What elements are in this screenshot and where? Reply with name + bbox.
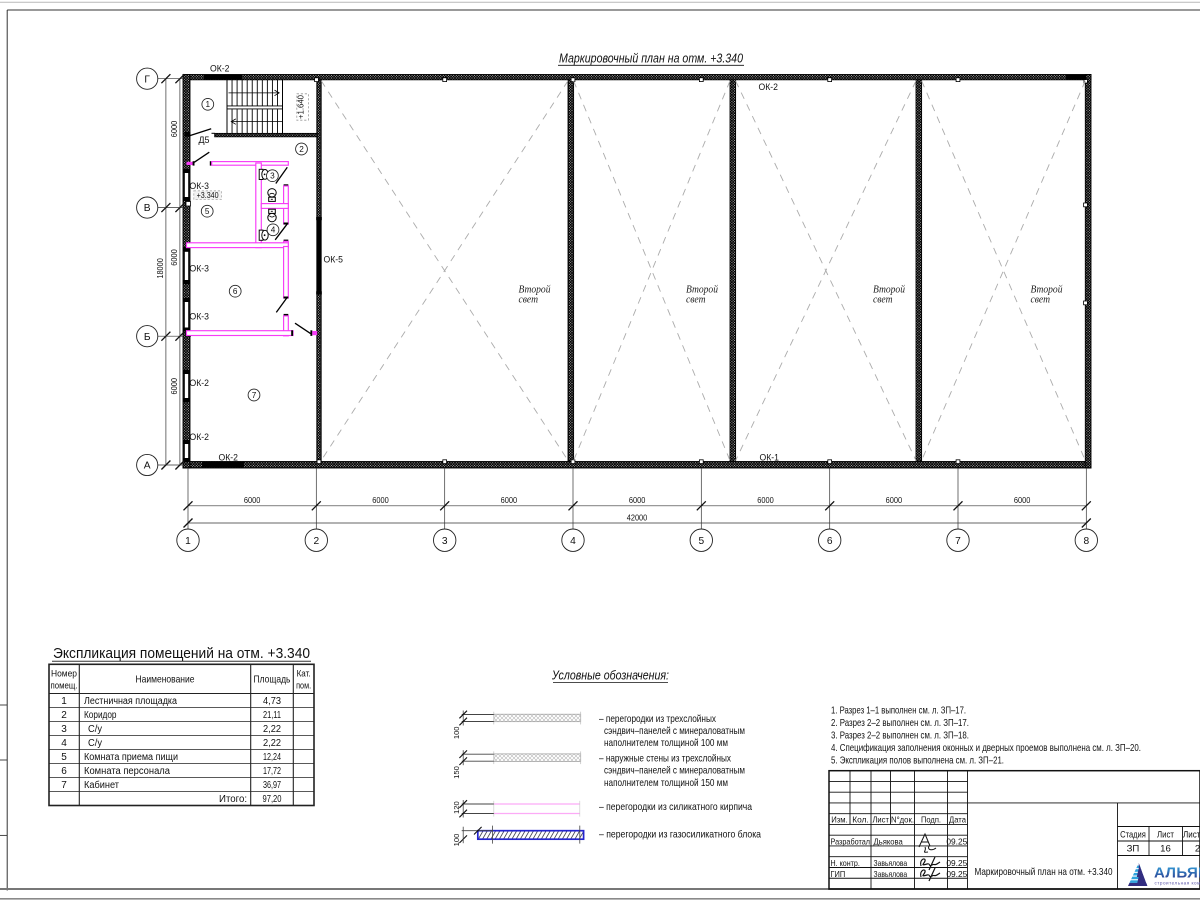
- svg-text:ОК-2: ОК-2: [219, 453, 239, 464]
- svg-text:6000: 6000: [629, 495, 646, 505]
- svg-text:6000: 6000: [169, 121, 179, 138]
- svg-text:3: 3: [61, 724, 67, 735]
- svg-text:А: А: [144, 461, 151, 472]
- svg-text:Дата: Дата: [949, 814, 966, 824]
- svg-text:– перегородки из трехслойных: – перегородки из трехслойных: [599, 714, 716, 725]
- svg-text:18000: 18000: [155, 258, 165, 279]
- svg-text:5: 5: [61, 752, 67, 763]
- svg-text:пом.: пом.: [296, 681, 311, 691]
- svg-text:+3.340: +3.340: [197, 191, 220, 200]
- svg-text:6000: 6000: [501, 495, 518, 505]
- svg-text:Лестничная площадка: Лестничная площадка: [84, 696, 177, 707]
- svg-text:Лист: Лист: [872, 814, 889, 824]
- svg-text:Кол.: Кол.: [852, 814, 869, 824]
- svg-text:Завьялова: Завьялова: [874, 869, 908, 879]
- svg-text:свет: свет: [519, 294, 539, 306]
- svg-text:– наружные стены из трехслойны: – наружные стены из трехслойных: [599, 754, 731, 765]
- svg-text:Д5: Д5: [199, 135, 210, 146]
- svg-text:ГИП: ГИП: [831, 869, 846, 879]
- svg-text:2,22: 2,22: [263, 738, 281, 749]
- svg-text:2: 2: [1195, 844, 1200, 855]
- svg-text:Маркировочный план на отм. +3.: Маркировочный план на отм. +3.340: [975, 867, 1113, 878]
- svg-text:2,22: 2,22: [263, 724, 281, 735]
- svg-text:2. Разрез 2–2 выполнен см. л.: 2. Разрез 2–2 выполнен см. л. ЗП–17.: [831, 718, 969, 729]
- svg-text:7: 7: [61, 780, 67, 791]
- svg-text:97,20: 97,20: [263, 794, 282, 805]
- svg-text:17,72: 17,72: [263, 766, 281, 777]
- svg-text:5. Экспликация полов выполнена: 5. Экспликация полов выполнена см. л. ЗП…: [831, 756, 1004, 767]
- svg-text:6000: 6000: [372, 495, 389, 505]
- svg-text:ОК-3: ОК-3: [190, 264, 210, 275]
- svg-text:ОК-2: ОК-2: [190, 432, 210, 443]
- svg-text:36,97: 36,97: [263, 780, 281, 791]
- svg-text:1: 1: [185, 536, 191, 547]
- svg-text:+1.640: +1.640: [297, 94, 306, 119]
- svg-text:свет: свет: [686, 294, 706, 306]
- svg-text:свет: свет: [1031, 294, 1051, 306]
- svg-text:Изм.: Изм.: [831, 814, 848, 824]
- svg-text:– перегородки из газосиликатно: – перегородки из газосиликатного блока: [599, 828, 761, 840]
- svg-text:12,24: 12,24: [263, 752, 281, 763]
- svg-text:Г: Г: [144, 74, 150, 85]
- svg-text:1. Разрез 1–1 выполнен см. л.: 1. Разрез 1–1 выполнен см. л. ЗП–17.: [831, 706, 966, 717]
- svg-text:– перегородки из силикатного к: – перегородки из силикатного кирпича: [599, 802, 752, 813]
- svg-text:100: 100: [452, 834, 461, 847]
- svg-text:Н. контр.: Н. контр.: [831, 858, 860, 868]
- svg-text:6000: 6000: [169, 249, 179, 266]
- svg-text:Условные обозначения:: Условные обозначения:: [551, 668, 669, 683]
- svg-text:В: В: [144, 203, 151, 214]
- svg-text:Номер: Номер: [51, 669, 77, 679]
- svg-text:Лист: Лист: [1157, 829, 1174, 839]
- svg-text:АЛЬЯНС: АЛЬЯНС: [1154, 865, 1200, 882]
- svg-text:3. Разрез 2–2 выполнен см. л.: 3. Разрез 2–2 выполнен см. л. ЗП–18.: [831, 731, 969, 742]
- svg-text:2: 2: [299, 145, 304, 154]
- svg-text:120: 120: [452, 801, 461, 814]
- svg-text:100: 100: [452, 726, 461, 739]
- svg-text:С/у: С/у: [88, 738, 102, 749]
- svg-text:Итого:: Итого:: [219, 794, 247, 805]
- svg-text:6: 6: [827, 536, 833, 547]
- svg-text:09.25: 09.25: [946, 837, 967, 847]
- svg-text:наполнителем толщиной 150 мм: наполнителем толщиной 150 мм: [604, 778, 728, 789]
- svg-text:5: 5: [698, 536, 704, 547]
- svg-text:Стадия: Стадия: [1120, 829, 1146, 839]
- svg-text:5: 5: [205, 207, 210, 216]
- svg-text:4: 4: [570, 536, 576, 547]
- svg-text:ЗП: ЗП: [1127, 844, 1140, 855]
- svg-text:21,11: 21,11: [263, 710, 281, 721]
- svg-text:Экспликация помещений на отм.: Экспликация помещений на отм. +3.340: [53, 645, 310, 662]
- svg-text:Площадь: Площадь: [254, 675, 291, 686]
- svg-text:2: 2: [61, 710, 67, 721]
- svg-text:строительная компания: строительная компания: [1155, 880, 1200, 885]
- svg-text:3: 3: [270, 172, 275, 181]
- svg-text:16: 16: [1160, 844, 1171, 855]
- svg-text:ОК-2: ОК-2: [210, 64, 230, 75]
- svg-text:09.25: 09.25: [946, 869, 967, 879]
- svg-text:7: 7: [252, 391, 257, 400]
- svg-text:ОК-2: ОК-2: [759, 82, 779, 93]
- svg-text:4: 4: [61, 738, 67, 749]
- svg-text:4. Спецификация заполнения око: 4. Спецификация заполнения оконных и две…: [831, 742, 1141, 754]
- svg-text:09.25: 09.25: [946, 858, 967, 868]
- svg-text:4: 4: [271, 226, 276, 235]
- svg-text:ОК-2: ОК-2: [190, 378, 210, 389]
- svg-text:Маркировочный план на отм. +3.: Маркировочный план на отм. +3.340: [559, 51, 744, 66]
- svg-text:Кат.: Кат.: [297, 669, 311, 679]
- svg-text:помещ.: помещ.: [51, 681, 78, 691]
- svg-text:ОК-1: ОК-1: [760, 453, 780, 464]
- svg-text:6: 6: [61, 766, 67, 777]
- svg-text:Комната приема пищи: Комната приема пищи: [84, 752, 178, 763]
- svg-text:6000: 6000: [757, 495, 774, 505]
- svg-text:1: 1: [61, 696, 67, 707]
- svg-text:7: 7: [955, 536, 961, 547]
- svg-text:С/у: С/у: [88, 724, 102, 735]
- svg-text:6: 6: [233, 287, 238, 296]
- svg-text:1: 1: [206, 100, 211, 109]
- svg-text:2: 2: [313, 536, 319, 547]
- svg-text:8: 8: [1083, 536, 1089, 547]
- svg-text:Листов: Листов: [1183, 829, 1200, 839]
- svg-text:6000: 6000: [1014, 495, 1031, 505]
- svg-text:Дьякова: Дьякова: [874, 837, 904, 847]
- svg-text:6000: 6000: [169, 378, 179, 395]
- svg-text:6000: 6000: [886, 495, 903, 505]
- svg-text:3: 3: [442, 536, 448, 547]
- svg-text:Разработал: Разработал: [831, 837, 871, 847]
- svg-text:ОК-3: ОК-3: [190, 311, 210, 322]
- svg-text:Подп.: Подп.: [921, 814, 941, 824]
- svg-text:6000: 6000: [244, 495, 261, 505]
- svg-text:Кабинет: Кабинет: [84, 779, 119, 791]
- svg-text:Завьялова: Завьялова: [874, 858, 908, 868]
- svg-text:свет: свет: [873, 294, 893, 306]
- svg-text:Коридор: Коридор: [84, 710, 117, 721]
- svg-text:Б: Б: [144, 332, 151, 343]
- svg-text:сэндвич–панелей с минераловатн: сэндвич–панелей с минераловатным: [604, 766, 745, 777]
- svg-text:ОК-5: ОК-5: [324, 255, 344, 266]
- svg-text:Комната персонала: Комната персонала: [84, 766, 170, 777]
- svg-text:Наименование: Наименование: [136, 675, 195, 686]
- svg-text:наполнителем толщиной 100 мм: наполнителем толщиной 100 мм: [604, 738, 728, 749]
- svg-text:4,73: 4,73: [263, 696, 281, 707]
- svg-text:N°док.: N°док.: [891, 814, 914, 824]
- svg-text:сэндвич–панелей с минераловатн: сэндвич–панелей с минераловатным: [604, 726, 745, 737]
- svg-text:42000: 42000: [627, 512, 648, 522]
- svg-text:150: 150: [452, 766, 461, 779]
